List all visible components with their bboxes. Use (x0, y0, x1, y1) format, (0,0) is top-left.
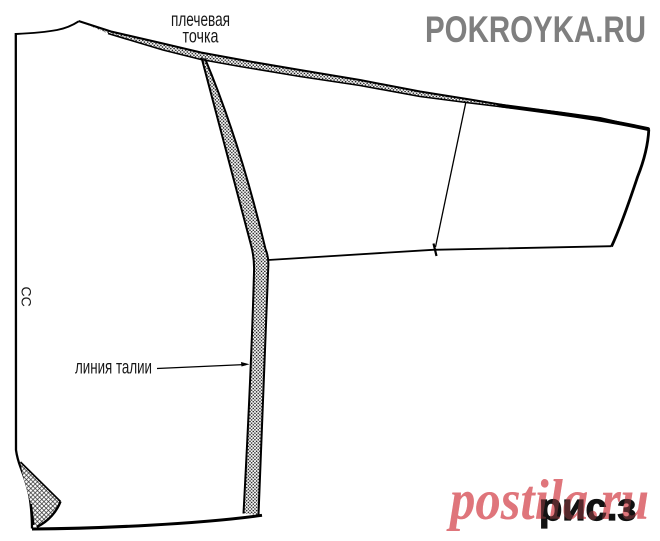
svg-text:POKROYKA.RU: POKROYKA.RU (425, 8, 646, 50)
svg-text:postila.ru: postila.ru (446, 469, 649, 532)
svg-text:точка: точка (183, 26, 219, 48)
svg-text:линия талии: линия талии (75, 357, 152, 379)
svg-text:СС: СС (19, 287, 35, 307)
